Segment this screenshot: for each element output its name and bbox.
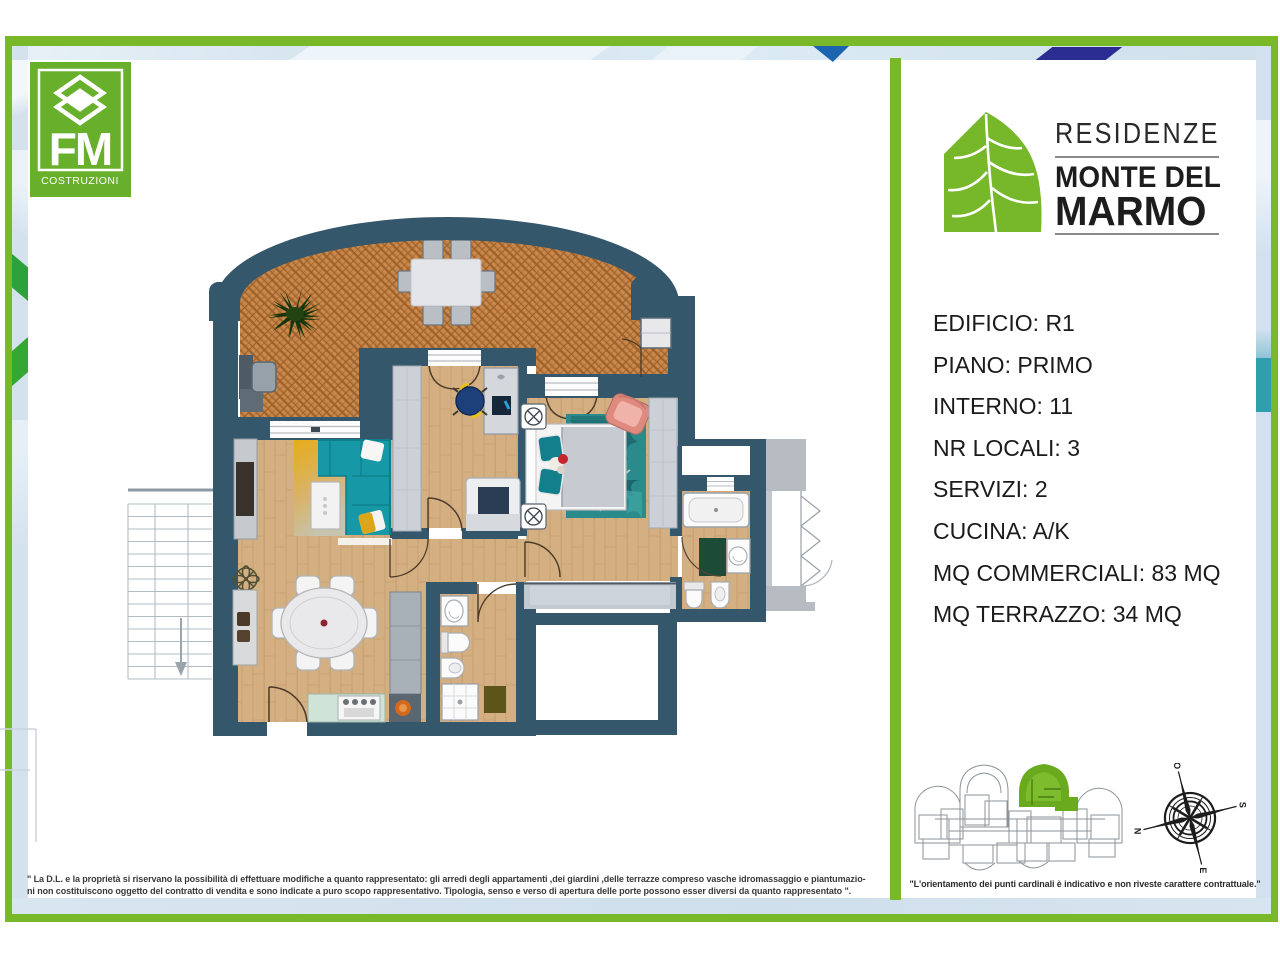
svg-text:N: N xyxy=(1133,828,1143,835)
svg-text:E: E xyxy=(1198,867,1208,873)
svg-text:S: S xyxy=(1237,802,1247,808)
svg-text:O: O xyxy=(1172,763,1182,769)
